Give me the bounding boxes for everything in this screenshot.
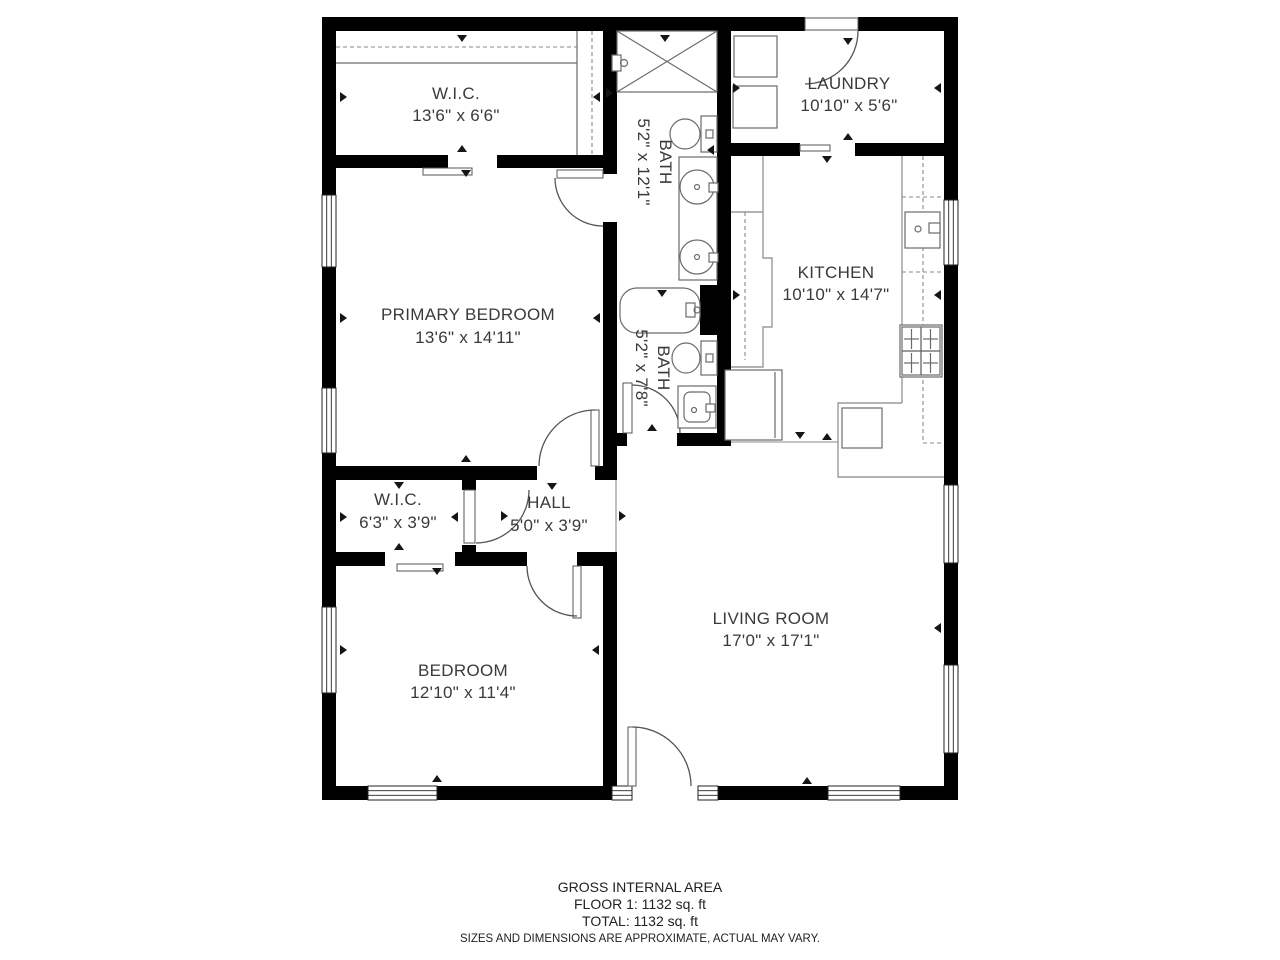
svg-text:PRIMARY BEDROOM: PRIMARY BEDROOM (381, 305, 555, 324)
svg-text:5'0" x 3'9": 5'0" x 3'9" (510, 516, 588, 535)
window (828, 786, 900, 800)
svg-text:LAUNDRY: LAUNDRY (807, 74, 890, 93)
primary-bedroom-door (539, 410, 599, 466)
room-label-bedroom: BEDROOM 12'10" x 11'4" (410, 661, 516, 702)
room-label-wic1: W.I.C. 13'6" x 6'6" (412, 84, 499, 125)
svg-text:W.I.C.: W.I.C. (374, 490, 422, 509)
disclaimer-text: SIZES AND DIMENSIONS ARE APPROXIMATE, AC… (0, 932, 1280, 947)
room-label-bath2: BATH 5'2" x 7'8" (632, 329, 673, 407)
svg-text:W.I.C.: W.I.C. (432, 84, 480, 103)
svg-text:5'2" x 7'8": 5'2" x 7'8" (632, 329, 651, 407)
stove-icon (900, 325, 942, 377)
window (322, 388, 336, 453)
room-label-hall: HALL 5'0" x 3'9" (510, 493, 588, 535)
refrigerator-icon (725, 370, 782, 440)
room-label-primary-bedroom: PRIMARY BEDROOM 13'6" x 14'11" (381, 305, 555, 347)
washer-icon (734, 36, 777, 77)
window (944, 485, 958, 563)
window (322, 195, 336, 267)
bedroom-door (527, 566, 581, 618)
svg-text:BATH: BATH (656, 139, 675, 184)
window (322, 607, 336, 693)
entry-sidelite-window (698, 786, 718, 800)
svg-text:BEDROOM: BEDROOM (418, 661, 508, 680)
kitchen-sink-icon (905, 212, 940, 248)
plan-summary: GROSS INTERNAL AREA FLOOR 1: 1132 sq. ft… (0, 879, 1280, 947)
svg-text:BATH: BATH (654, 345, 673, 390)
window (944, 200, 958, 265)
floor-plan-svg: W.I.C. 13'6" x 6'6" LAUNDRY 10'10" x 5'6… (0, 0, 1280, 820)
svg-text:5'2" x 12'1": 5'2" x 12'1" (634, 118, 653, 205)
laundry-sliding-door (800, 145, 830, 151)
room-label-wic2: W.I.C. 6'3" x 3'9" (359, 490, 437, 532)
ensuite-bath-door (555, 170, 603, 226)
gross-internal-area-label: GROSS INTERNAL AREA (0, 879, 1280, 896)
entry-sidelite-window (612, 786, 632, 800)
svg-text:HALL: HALL (527, 493, 571, 512)
window (944, 665, 958, 753)
svg-text:KITCHEN: KITCHEN (798, 263, 875, 282)
svg-text:13'6" x 14'11": 13'6" x 14'11" (415, 328, 521, 347)
svg-text:12'10" x 11'4": 12'10" x 11'4" (410, 683, 516, 702)
room-label-laundry: LAUNDRY 10'10" x 5'6" (800, 74, 897, 115)
floor-area-value: FLOOR 1: 1132 sq. ft (0, 896, 1280, 913)
sink-icon (678, 386, 716, 428)
svg-text:10'10" x 5'6": 10'10" x 5'6" (800, 96, 897, 115)
svg-text:10'10" x 14'7": 10'10" x 14'7" (783, 285, 890, 304)
svg-text:6'3" x 3'9": 6'3" x 3'9" (359, 513, 437, 532)
svg-text:13'6" x 6'6": 13'6" x 6'6" (412, 106, 499, 125)
svg-text:17'0" x 17'1": 17'0" x 17'1" (722, 631, 819, 650)
room-label-living-room: LIVING ROOM 17'0" x 17'1" (713, 609, 830, 650)
window (368, 786, 437, 800)
front-entry-door (628, 727, 691, 786)
room-label-bath1: BATH 5'2" x 12'1" (634, 118, 675, 205)
dryer-icon (733, 86, 777, 128)
total-area-value: TOTAL: 1132 sq. ft (0, 913, 1280, 930)
dishwasher-icon (842, 408, 882, 448)
floor-plan: W.I.C. 13'6" x 6'6" LAUNDRY 10'10" x 5'6… (0, 0, 1280, 820)
svg-text:LIVING ROOM: LIVING ROOM (713, 609, 830, 628)
toilet-icon (670, 116, 717, 152)
toilet-icon (672, 341, 717, 375)
bathtub-icon (620, 288, 700, 333)
room-label-kitchen: KITCHEN 10'10" x 14'7" (783, 263, 890, 304)
double-vanity-icon (679, 157, 718, 280)
